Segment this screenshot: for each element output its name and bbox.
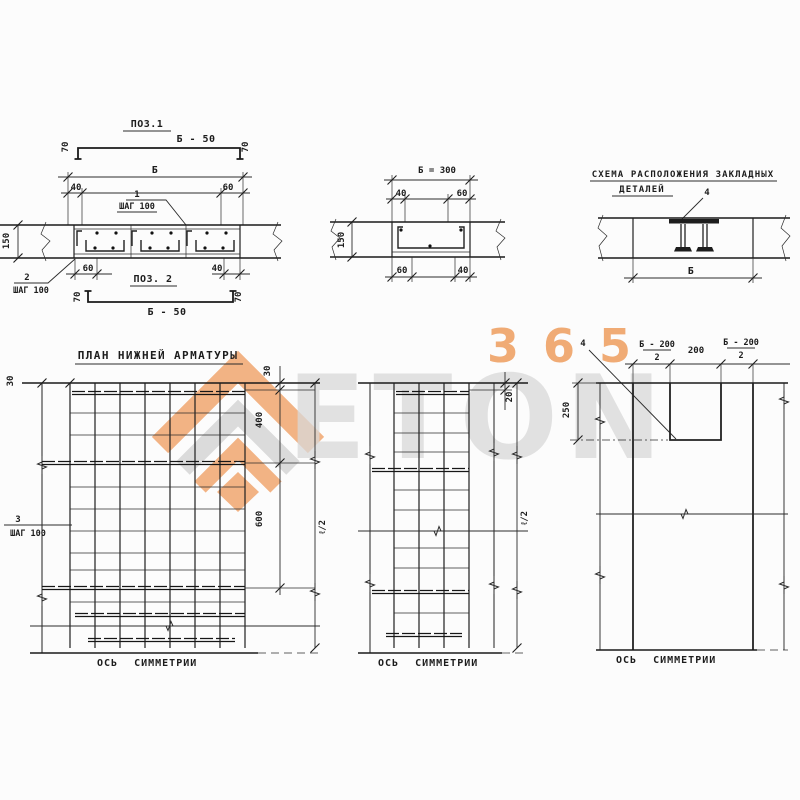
plan-right-callout-4: 4 (580, 339, 586, 349)
section-left-dim-60: 60 (223, 183, 234, 193)
stirrups (77, 231, 234, 251)
plan-mid-half-span: ℓ/2 (520, 511, 530, 525)
callout-2-step: ШАГ 100 (13, 286, 49, 296)
plan-left-half-span: ℓ/2 (318, 520, 328, 534)
plan-right-dim-200: 200 (688, 346, 704, 356)
pos1-detail: ПОЗ.1 Б - 50 70 70 (61, 119, 251, 159)
section-mid-dim-40: 40 (396, 189, 407, 199)
pos2-detail: ПОЗ. 2 70 70 Б - 50 (73, 274, 244, 318)
section-left-bottom-60: 60 (83, 264, 94, 274)
callout-3-step: ШАГ 100 (10, 529, 46, 539)
plan-right-dim-250: 250 (562, 402, 572, 418)
callout-1-number: 1 (134, 190, 139, 200)
section-left-height: 150 (2, 233, 12, 249)
plan-mid-axis-label: ОСЬ СИММЕТРИИ (378, 658, 478, 669)
frac-right-num: Б - 200 (723, 338, 759, 348)
pos1-hook-right: 70 (241, 142, 251, 153)
pos2-hook-left: 70 (73, 292, 83, 303)
schema-embeds: СХЕМА РАСПОЛОЖЕНИЯ ЗАКЛАДНЫХ ДЕТАЛЕЙ 4 Б (590, 170, 790, 283)
section-mid-height: 150 (337, 232, 347, 248)
schema-title-line1: СХЕМА РАСПОЛОЖЕНИЯ ЗАКЛАДНЫХ (592, 170, 775, 180)
pos1-title: ПОЗ.1 (131, 119, 164, 130)
plan-title: ПЛАН НИЖНЕЙ АРМАТУРЫ (78, 349, 238, 362)
drawing-sheet: ETON 365 ПОЗ.1 Б - 50 70 70 Б 40 60 1 ША… (0, 0, 800, 800)
section-mid-dim-60: 60 (457, 189, 468, 199)
schema-width: Б (688, 266, 695, 277)
section-left-width: Б (152, 165, 159, 176)
notch-outline (670, 383, 721, 440)
plan-right-axis-label: ОСЬ СИММЕТРИИ (616, 655, 716, 666)
pos2-hook-right: 70 (234, 292, 244, 303)
pos1-hook-left: 70 (61, 142, 71, 153)
plan-left-dim-30: 30 (263, 366, 273, 377)
pos1-bar-label: Б - 50 (176, 134, 215, 145)
plan-mid-dim-20: 20 (505, 392, 515, 403)
section-left-dim-40: 40 (71, 183, 82, 193)
schema-title-line2: ДЕТАЛЕЙ (619, 183, 665, 195)
frac-left-num: Б - 200 (639, 340, 675, 350)
frac-left-den: 2 (654, 353, 659, 363)
watermark-number: 365 (487, 319, 655, 373)
callout-1-step: ШАГ 100 (119, 202, 155, 212)
embed-plate-icon (669, 219, 719, 252)
section-mid-bottom-60: 60 (397, 266, 408, 276)
reinforcement-drawing: ETON 365 ПОЗ.1 Б - 50 70 70 Б 40 60 1 ША… (0, 0, 800, 800)
pos2-bar-label: Б - 50 (147, 307, 186, 318)
plan-left-corner-dim: 30 (6, 376, 16, 387)
plan-left-dim-600: 600 (255, 511, 265, 527)
plan-left-dim-400: 400 (255, 412, 265, 428)
plan-left-axis-label: ОСЬ СИММЕТРИИ (97, 658, 197, 669)
schema-callout-4: 4 (704, 188, 710, 198)
frac-right-den: 2 (738, 351, 743, 361)
pos2-title: ПОЗ. 2 (133, 274, 172, 285)
callout-2-number: 2 (24, 273, 29, 283)
watermark: ETON 365 (160, 319, 669, 512)
section-mid-bottom-40: 40 (458, 266, 469, 276)
section-mid-width: Б = 300 (418, 166, 456, 176)
section-mid: Б = 300 40 60 150 60 40 (330, 166, 505, 282)
callout-3-number: 3 (15, 515, 20, 525)
section-left-bottom-40: 40 (212, 264, 223, 274)
